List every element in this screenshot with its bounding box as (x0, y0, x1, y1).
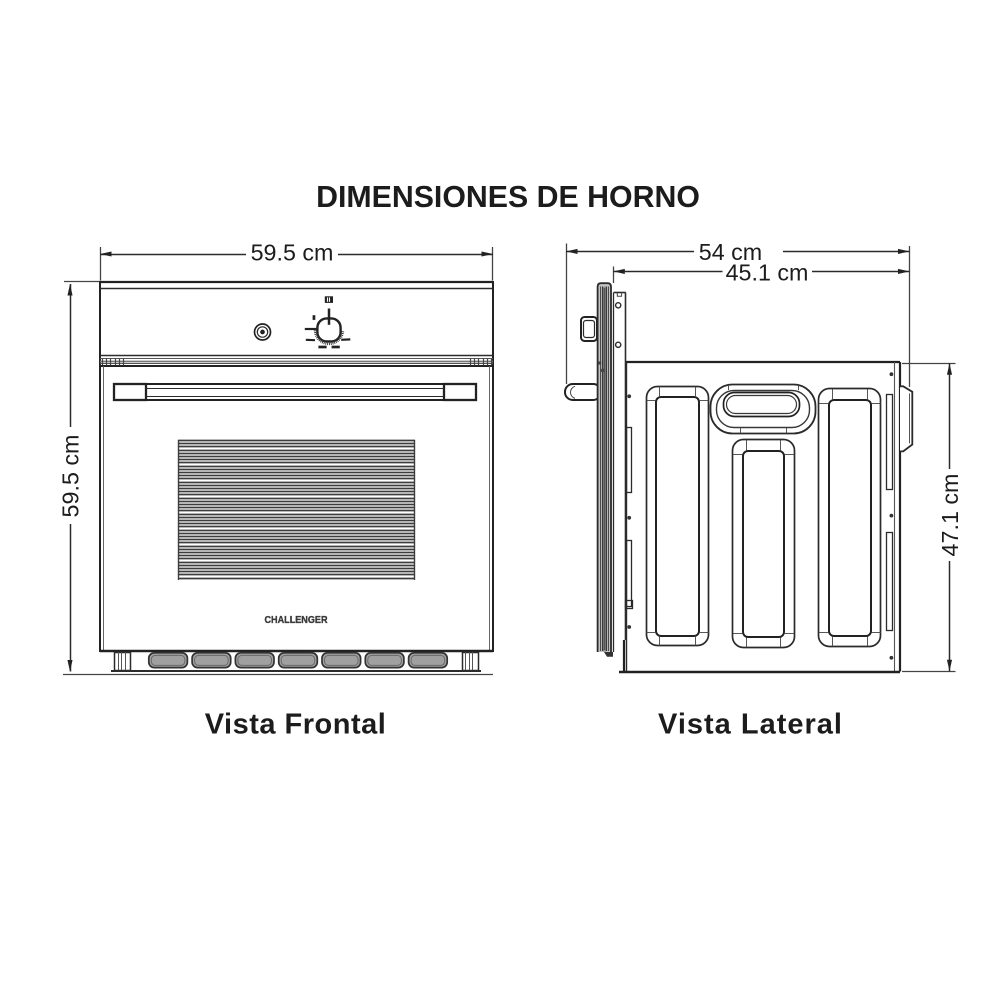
svg-text:Vista Lateral: Vista Lateral (658, 709, 843, 741)
svg-text:47.1 cm: 47.1 cm (937, 474, 963, 557)
svg-text:59.5 cm: 59.5 cm (251, 239, 334, 265)
svg-text:CHALLENGER: CHALLENGER (265, 614, 328, 626)
svg-text:59.5 cm: 59.5 cm (57, 435, 83, 518)
svg-text:Vista Frontal: Vista Frontal (205, 709, 387, 741)
svg-text:DIMENSIONES DE HORNO: DIMENSIONES DE HORNO (316, 181, 700, 214)
svg-text:45.1 cm: 45.1 cm (726, 259, 809, 285)
